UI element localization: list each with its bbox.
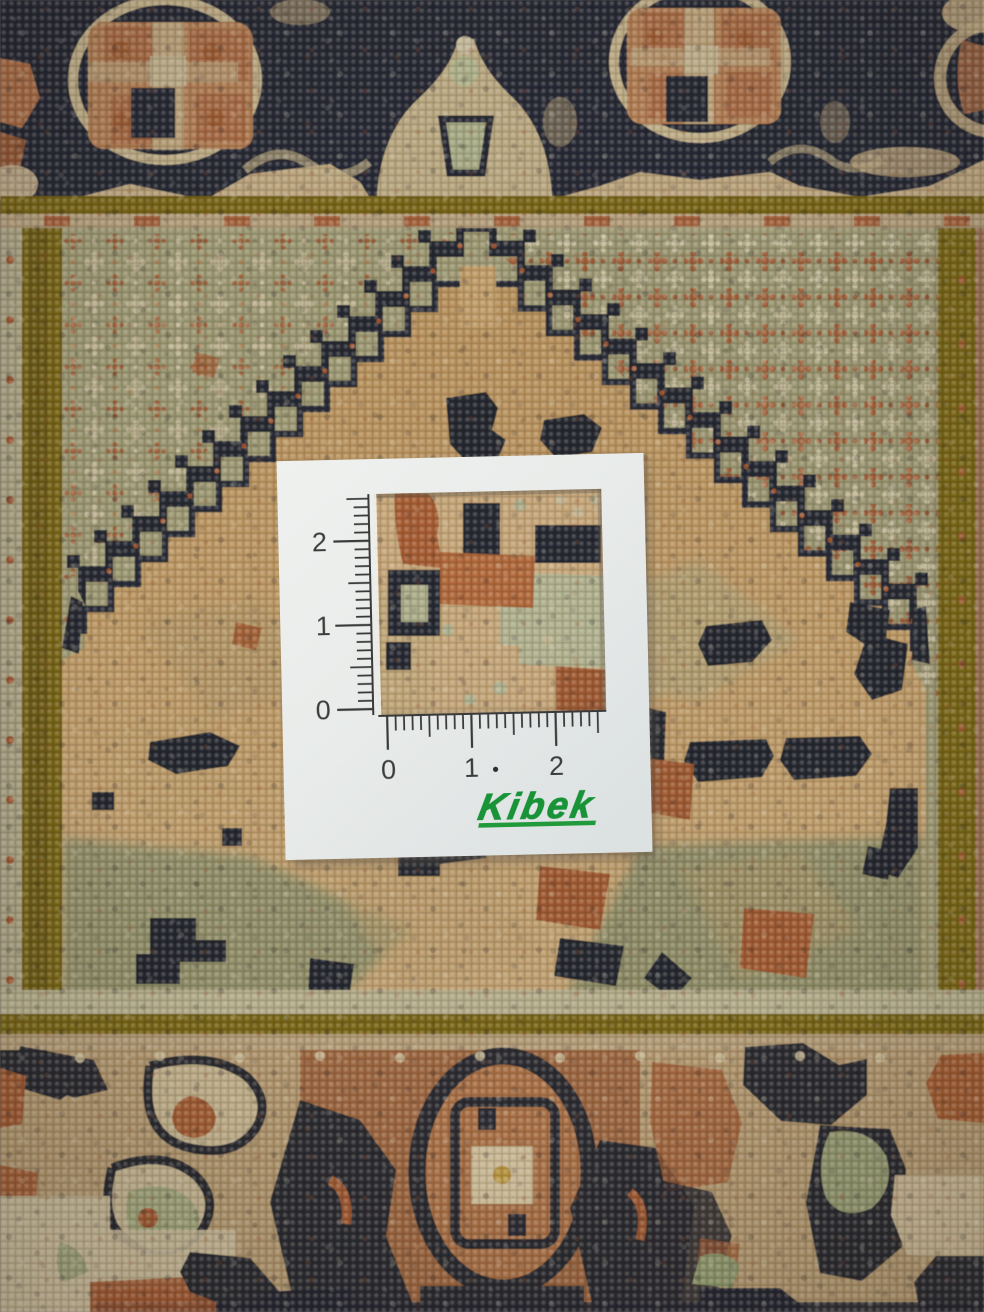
svg-text:0: 0 bbox=[381, 755, 397, 785]
svg-text:2: 2 bbox=[312, 527, 328, 557]
svg-text:1: 1 bbox=[464, 753, 480, 783]
svg-text:0: 0 bbox=[315, 695, 331, 725]
svg-text:2: 2 bbox=[549, 751, 565, 781]
svg-text:1: 1 bbox=[315, 611, 331, 641]
